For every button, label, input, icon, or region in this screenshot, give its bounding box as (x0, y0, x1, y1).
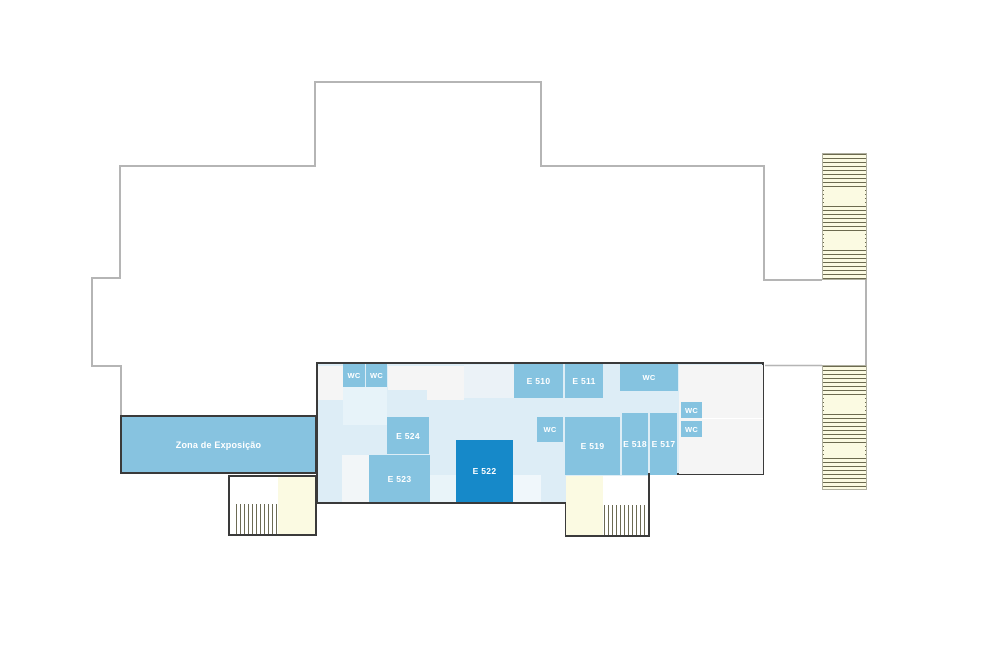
wc-right-2[interactable]: WC (681, 421, 702, 437)
vacant-unit (513, 475, 541, 502)
wc-right-1[interactable]: WC (681, 402, 702, 418)
unit-divider (702, 418, 763, 419)
floor-plan-structure (0, 0, 995, 654)
vacant-unit (343, 387, 387, 425)
exhibition-zone-label: Zona de Exposição (176, 440, 261, 450)
vacant-unit (388, 366, 427, 390)
room-e510-label: E 510 (527, 376, 551, 386)
wc-label: WC (642, 373, 655, 382)
room-e510[interactable]: E 510 (514, 364, 563, 398)
room-e518[interactable]: E 518 (622, 413, 648, 475)
wc-label: WC (543, 425, 556, 434)
vacant-unit (430, 475, 456, 502)
wc-label: WC (685, 406, 698, 415)
vacant-unit (342, 455, 369, 502)
room-e518-label: E 518 (623, 439, 647, 449)
floor-plan-canvas: Zona de Exposição E 510 E 511 E 517 E 51… (0, 0, 995, 654)
room-e511-label: E 511 (572, 376, 595, 386)
room-e524-label: E 524 (396, 431, 420, 441)
exhibition-zone[interactable]: Zona de Exposição (120, 415, 317, 474)
wc-label: WC (685, 425, 698, 434)
stairwell-center-yellow (566, 476, 603, 535)
room-e524[interactable]: E 524 (387, 417, 429, 454)
wc-label: WC (347, 371, 360, 380)
room-e517[interactable]: E 517 (650, 413, 677, 475)
room-e523-label: E 523 (388, 474, 412, 484)
stairs-landing (824, 231, 865, 248)
vacant-unit (427, 366, 464, 400)
vacant-unit (464, 365, 514, 398)
room-e517-label: E 517 (652, 439, 676, 449)
stairwell-center-white (603, 476, 648, 535)
room-e523[interactable]: E 523 (369, 455, 430, 502)
stairwell-left-yellow (278, 477, 315, 534)
wc-top-left-1[interactable]: WC (343, 364, 365, 387)
wc-top-left-2[interactable]: WC (366, 364, 387, 387)
wc-top-center[interactable]: WC (620, 364, 678, 391)
vacant-unit-right (679, 365, 763, 474)
stairs-hatch (236, 504, 278, 534)
room-e519-label: E 519 (581, 441, 605, 451)
vacant-unit (318, 366, 343, 400)
stairs-landing (824, 444, 865, 457)
wc-label: WC (370, 371, 383, 380)
room-e522-label: E 522 (473, 466, 497, 476)
stairs-landing (824, 187, 865, 204)
wc-middle[interactable]: WC (537, 417, 563, 442)
room-e519[interactable]: E 519 (565, 417, 620, 475)
room-e511[interactable]: E 511 (565, 364, 603, 398)
stairs-lower-right (822, 365, 867, 490)
room-e522[interactable]: E 522 (456, 440, 513, 502)
stairs-top-right (822, 153, 867, 280)
stairs-hatch (604, 505, 647, 535)
stairs-landing (824, 396, 865, 413)
stairwell-left-box (228, 475, 317, 536)
